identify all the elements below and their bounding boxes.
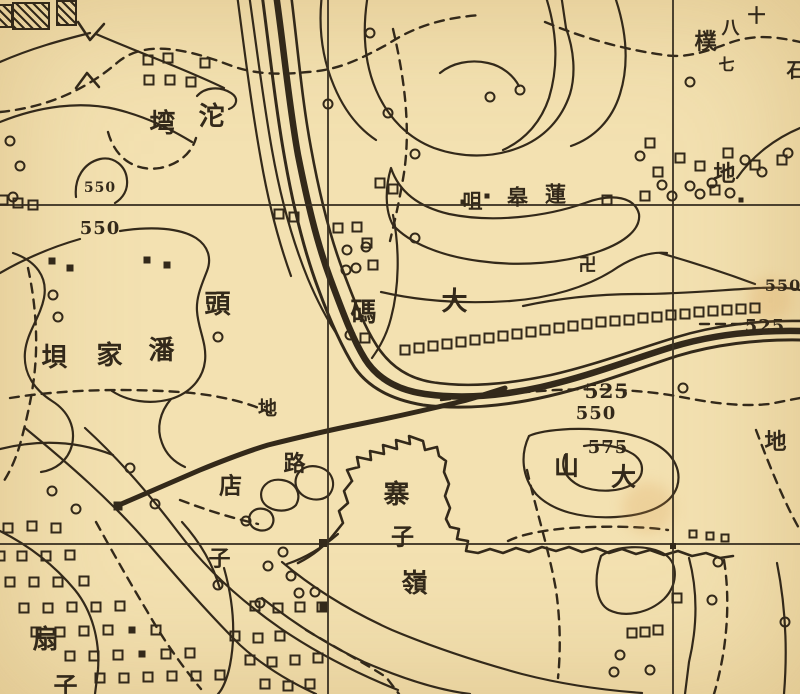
elev-550-c: 550 [576, 405, 617, 423]
field-square-symbol [512, 329, 523, 340]
field-square-symbol [274, 209, 285, 220]
field-circle-symbol [685, 181, 696, 192]
field-square-symbol [114, 502, 123, 511]
field-square-symbol [79, 576, 90, 587]
field-square-symbol [167, 671, 178, 682]
elev-550-a: 550 [84, 181, 116, 195]
label-pan: 潘 [148, 338, 175, 364]
field-circle-symbol [125, 463, 136, 474]
label-da-shan: 大 [611, 465, 637, 490]
label-shan: 山 [554, 454, 580, 479]
field-square-symbol [640, 191, 651, 202]
field-circle-symbol [323, 99, 334, 110]
field-square-symbol [672, 593, 683, 604]
field-square-symbol [95, 673, 106, 684]
field-square-symbol [295, 602, 306, 613]
field-circle-symbol [757, 167, 768, 178]
label-tuo: 沱 [198, 104, 225, 130]
field-square-symbol [151, 625, 162, 636]
label-zi-fan: 子 [54, 674, 79, 694]
field-square-symbol [28, 200, 39, 211]
label-di-ne: 地 [713, 163, 736, 185]
field-square-symbol [706, 532, 715, 541]
field-square-symbol [708, 306, 719, 317]
field-square-symbol [161, 649, 172, 660]
field-square-symbol [5, 577, 16, 588]
elev-525-b: 525 [745, 318, 786, 336]
elev-525-a: 525 [585, 381, 630, 401]
field-square-symbol [27, 521, 38, 532]
field-square-symbol [675, 153, 686, 164]
field-square-symbol [0, 551, 6, 562]
field-square-symbol [144, 75, 155, 86]
field-circle-symbol [707, 595, 718, 606]
field-square-symbol [652, 312, 663, 323]
label-fan: 扇 [32, 627, 59, 653]
field-circle-symbol [48, 290, 59, 301]
label-edge-char: 石 [787, 60, 800, 80]
label-shi: 十 [748, 8, 767, 26]
label-ling: 嶺 [401, 571, 428, 597]
field-square-symbol [103, 625, 114, 636]
building-symbol [0, 4, 13, 28]
field-circle-symbol [255, 598, 266, 609]
field-circle-symbol [635, 151, 646, 162]
field-circle-symbol [47, 486, 58, 497]
building-symbol [12, 2, 50, 30]
field-square-symbol [721, 534, 730, 543]
field-circle-symbol [361, 242, 372, 253]
field-square-symbol [368, 260, 379, 271]
elev-550-b: 550 [80, 220, 121, 238]
elev-550-d: 550 [765, 278, 800, 294]
building-symbol [56, 0, 77, 26]
field-square-symbol [53, 577, 64, 588]
field-square-symbol [275, 631, 286, 642]
field-square-symbol [67, 602, 78, 613]
field-square-symbol [470, 335, 481, 346]
field-circle-symbol [410, 149, 421, 160]
field-circle-symbol [609, 667, 620, 678]
field-circle-symbol [645, 665, 656, 676]
field-square-symbol [694, 307, 705, 318]
field-square-symbol [388, 184, 399, 195]
field-circle-symbol [685, 77, 696, 88]
field-square-symbol [164, 262, 171, 269]
field-square-symbol [115, 601, 126, 612]
field-square-symbol [624, 315, 635, 326]
field-square-symbol [305, 679, 316, 690]
field-square-symbol [143, 672, 154, 683]
field-circle-symbol [15, 161, 26, 172]
field-circle-symbol [345, 330, 356, 341]
label-da: 大 [441, 289, 468, 315]
field-square-symbol [260, 679, 271, 690]
field-square-symbol [333, 223, 344, 234]
field-circle-symbol [351, 263, 362, 274]
field-square-symbol [456, 337, 467, 348]
field-circle-symbol [725, 188, 736, 199]
field-circle-symbol [241, 516, 252, 527]
field-square-symbol [129, 627, 136, 634]
field-square-symbol [695, 161, 706, 172]
label-pu: 樸 [694, 31, 717, 53]
field-circle-symbol [695, 189, 706, 200]
field-square-symbol [596, 317, 607, 328]
field-circle-symbol [410, 233, 421, 244]
field-circle-symbol [278, 547, 289, 558]
field-square-symbol [253, 633, 264, 644]
field-square-symbol [582, 319, 593, 330]
field-square-symbol [289, 212, 300, 223]
field-circle-symbol [53, 312, 64, 323]
field-square-symbol [722, 305, 733, 316]
field-square-symbol [442, 339, 453, 350]
field-square-symbol [43, 603, 54, 614]
label-zhai: 寨 [383, 482, 410, 508]
field-square-symbol [165, 75, 176, 86]
field-circle-symbol [780, 617, 791, 628]
field-circle-symbol [5, 136, 16, 147]
field-circle-symbol [515, 85, 526, 96]
field-square-symbol [736, 304, 747, 315]
field-square-symbol [215, 670, 226, 681]
field-square-symbol [65, 550, 76, 561]
label-tou: 頭 [204, 292, 231, 318]
label-lian: 蓮 [545, 184, 567, 205]
field-square-symbol [645, 138, 656, 149]
field-square-symbol [428, 341, 439, 352]
field-square-symbol [689, 530, 698, 539]
field-square-symbol [666, 310, 677, 321]
elev-575: 575 [588, 439, 629, 457]
label-wan: 塆 [149, 111, 176, 137]
field-square-symbol [191, 671, 202, 682]
field-circle-symbol [485, 92, 496, 103]
field-square-symbol [610, 316, 621, 327]
field-square-symbol [653, 167, 664, 178]
field-square-symbol [230, 631, 241, 642]
field-square-symbol [51, 523, 62, 534]
field-square-symbol [49, 258, 56, 265]
field-square-symbol [267, 657, 278, 668]
field-square-symbol [29, 577, 40, 588]
field-circle-symbol [8, 192, 19, 203]
field-square-symbol [638, 313, 649, 324]
label-zi-dian: 子 [208, 548, 231, 570]
field-square-symbol [750, 303, 761, 314]
field-square-symbol [290, 655, 301, 666]
field-circle-symbol [667, 191, 678, 202]
field-square-symbol [200, 58, 211, 69]
field-circle-symbol [713, 557, 724, 568]
field-square-symbol [319, 539, 327, 547]
field-square-symbol [139, 651, 146, 658]
field-square-symbol [163, 53, 174, 64]
label-zui: 咀 [463, 191, 484, 211]
label-zi-zhai: 子 [391, 526, 415, 549]
field-square-symbol [3, 523, 14, 534]
field-square-symbol [283, 681, 294, 692]
field-circle-symbol [678, 383, 689, 394]
field-square-symbol [414, 343, 425, 354]
field-circle-symbol [615, 650, 626, 661]
field-square-symbol [91, 602, 102, 613]
label-ba8: 八 [722, 20, 741, 38]
field-circle-symbol [740, 155, 751, 166]
field-circle-symbol [383, 108, 394, 119]
field-circle-symbol [294, 588, 305, 599]
field-square-symbol [554, 323, 565, 334]
field-circle-symbol [71, 504, 82, 515]
field-square-symbol [352, 222, 363, 233]
map-viewport: 沱塆550550潘家垻頭碼大蓮皋咀卍地十八樸七石地路店子寨子嶺山大5755505… [0, 0, 800, 694]
field-square-symbol [670, 543, 676, 549]
field-square-symbol [640, 627, 651, 638]
field-circle-symbol [263, 561, 274, 572]
field-square-symbol [540, 325, 551, 336]
field-square-symbol [89, 651, 100, 662]
field-square-symbol [65, 651, 76, 662]
field-square-symbol [245, 655, 256, 666]
field-square-symbol [320, 604, 327, 611]
field-circle-symbol [213, 580, 224, 591]
label-ba: 垻 [41, 345, 68, 371]
field-circle-symbol [657, 180, 668, 191]
field-circle-symbol [150, 499, 161, 510]
field-square-symbol [498, 331, 509, 342]
field-circle-symbol [213, 332, 224, 343]
grid-line-vertical [672, 0, 674, 694]
field-circle-symbol [342, 245, 353, 256]
field-square-symbol [485, 194, 490, 199]
field-circle-symbol [783, 148, 794, 159]
field-square-symbol [185, 648, 196, 659]
field-square-symbol [186, 77, 197, 88]
field-square-symbol [144, 257, 151, 264]
field-square-symbol [67, 265, 74, 272]
field-square-symbol [723, 148, 734, 159]
field-square-symbol [526, 327, 537, 338]
field-circle-symbol [310, 587, 321, 598]
field-circle-symbol [286, 571, 297, 582]
field-square-symbol [680, 309, 691, 320]
label-ma: 碼 [350, 300, 377, 326]
field-square-symbol [313, 653, 324, 664]
label-dian: 店 [219, 475, 243, 498]
field-square-symbol [360, 333, 371, 344]
temple-swastika: 卍 [579, 257, 598, 275]
field-square-symbol [273, 603, 284, 614]
field-square-symbol [375, 178, 386, 189]
field-square-symbol [568, 321, 579, 332]
field-square-symbol [739, 198, 744, 203]
field-square-symbol [653, 625, 664, 636]
label-jia: 家 [96, 343, 123, 369]
label-di-se: 地 [764, 431, 787, 453]
field-square-symbol [119, 673, 130, 684]
field-square-symbol [17, 551, 28, 562]
field-square-symbol [484, 333, 495, 344]
field-circle-symbol [365, 28, 376, 39]
field-square-symbol [19, 603, 30, 614]
field-square-symbol [602, 195, 613, 206]
label-di-center: 地 [258, 400, 278, 419]
field-square-symbol [400, 345, 411, 356]
grid-line-horizontal [0, 204, 800, 206]
field-square-symbol [79, 626, 90, 637]
map-overlay: 沱塆550550潘家垻頭碼大蓮皋咀卍地十八樸七石地路店子寨子嶺山大5755505… [0, 0, 800, 694]
field-square-symbol [41, 551, 52, 562]
field-square-symbol [143, 55, 154, 66]
field-square-symbol [627, 628, 638, 639]
label-qi: 七 [718, 57, 735, 73]
label-gao: 皋 [507, 187, 529, 208]
field-square-symbol [113, 650, 124, 661]
label-lu: 路 [283, 453, 306, 475]
